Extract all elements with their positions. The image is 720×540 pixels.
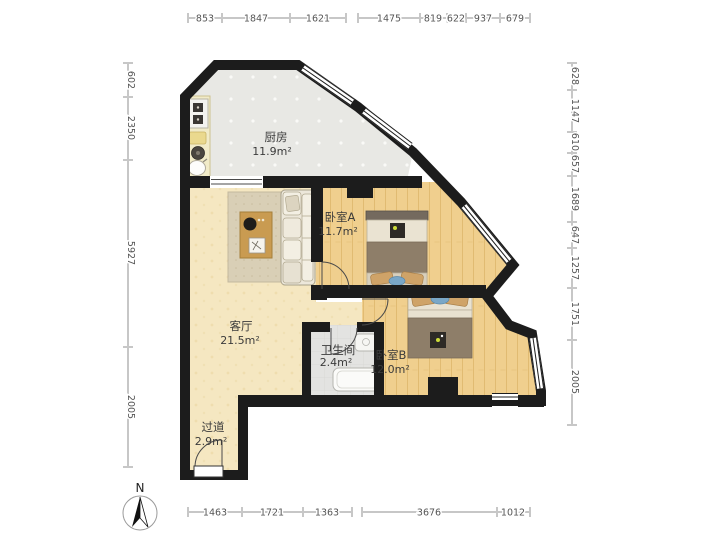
bed-a xyxy=(366,211,428,286)
dim-left-3: 2005 xyxy=(125,395,136,419)
wall-bedroomA-bedroomB xyxy=(311,285,486,298)
hallway-area: 2.9m² xyxy=(195,435,228,448)
dim-left-0: 602 xyxy=(125,71,136,89)
sofa xyxy=(281,190,315,285)
dim-top-3: 1475 xyxy=(377,14,401,25)
compass: N xyxy=(123,481,157,530)
dim-top-5: 622 xyxy=(447,14,465,25)
dim-top-2: 1621 xyxy=(306,14,330,25)
dim-bottom-3: 3676 xyxy=(417,508,441,519)
dimension-bottom: 1463 1721 1363 3676 1012 xyxy=(188,507,530,519)
bedroomB-label: 卧室B xyxy=(376,348,407,362)
bedroomA-label: 卧室A xyxy=(325,210,356,224)
dim-top-0: 853 xyxy=(196,14,214,25)
bed-b xyxy=(408,288,472,358)
kitchen-area: 11.9m² xyxy=(252,145,292,158)
dim-top-6: 937 xyxy=(474,14,492,25)
washbasin xyxy=(355,334,377,351)
compass-north-label: N xyxy=(136,481,145,495)
dimension-right: 628 1147 610 657 1689 647 1257 1751 2005 xyxy=(567,63,580,425)
dim-bottom-2: 1363 xyxy=(315,508,339,519)
dim-bottom-1: 1721 xyxy=(260,508,284,519)
dim-right-4: 1689 xyxy=(569,187,580,211)
wall-hallway-right xyxy=(238,395,248,480)
dim-left-1: 2350 xyxy=(125,116,136,140)
bedroomB-area: 12.0m² xyxy=(370,363,410,376)
dim-right-7: 1751 xyxy=(569,302,580,326)
dim-right-1: 1147 xyxy=(569,99,580,123)
dim-bottom-0: 1463 xyxy=(203,508,227,519)
table-pot xyxy=(244,218,257,231)
dim-top-4: 819 xyxy=(424,14,442,25)
wall-bathroom-left xyxy=(302,322,311,400)
hallway-label: 过道 xyxy=(202,420,225,434)
bathroom-label: 卫生间 xyxy=(321,343,356,357)
cutting-board xyxy=(189,132,206,144)
floor-plan-canvas: 厨房 11.9m² 客厅 21.5m² 卧室A 11.7m² 卧室B 12.0m… xyxy=(0,0,720,540)
wall-living-bedroomA xyxy=(311,178,323,262)
kitchen-label: 厨房 xyxy=(265,130,288,144)
living-label: 客厅 xyxy=(230,319,253,333)
bedroomB-window-south xyxy=(492,393,518,401)
dim-right-3: 657 xyxy=(569,155,580,173)
coffee-table xyxy=(240,212,272,258)
dim-top-1: 1847 xyxy=(244,14,268,25)
sofa-cushion xyxy=(285,195,300,212)
wall-bottom-long-east xyxy=(518,395,544,407)
dimension-left: 602 2350 5927 2005 xyxy=(123,63,136,467)
dim-bottom-4: 1012 xyxy=(501,508,525,519)
dim-top-7: 679 xyxy=(506,14,524,25)
dim-right-6: 1257 xyxy=(569,256,580,280)
bedroomA-area: 11.7m² xyxy=(318,225,358,238)
wall-bedroomB-west-pier xyxy=(356,285,368,298)
dim-right-2: 610 xyxy=(569,133,580,151)
wall-kitchen-left-pier xyxy=(185,176,210,188)
wall-column-bedroomA xyxy=(347,180,373,198)
bathroom-area: 2.4m² xyxy=(320,356,353,369)
wall-hallway-bottom-right xyxy=(224,470,248,480)
dim-right-0: 628 xyxy=(569,67,580,85)
dimension-top: 853 1847 1621 1475 819 622 937 679 xyxy=(188,13,530,25)
living-area: 21.5m² xyxy=(220,334,260,347)
dim-left-2: 5927 xyxy=(125,241,136,265)
wall-hallway-bottom-left xyxy=(180,470,193,480)
sink-basin xyxy=(189,161,206,176)
wall-pier-bedroomB xyxy=(428,377,458,401)
floor-plan-svg: 厨房 11.9m² 客厅 21.5m² 卧室A 11.7m² 卧室B 12.0m… xyxy=(0,0,720,540)
dim-right-5: 647 xyxy=(569,226,580,244)
wall-kitchen-living xyxy=(263,176,422,188)
bed-a-accessory xyxy=(390,223,405,238)
dim-right-8: 2005 xyxy=(569,370,580,394)
bed-a-decor xyxy=(389,277,405,286)
kitchen-opening xyxy=(210,176,263,188)
